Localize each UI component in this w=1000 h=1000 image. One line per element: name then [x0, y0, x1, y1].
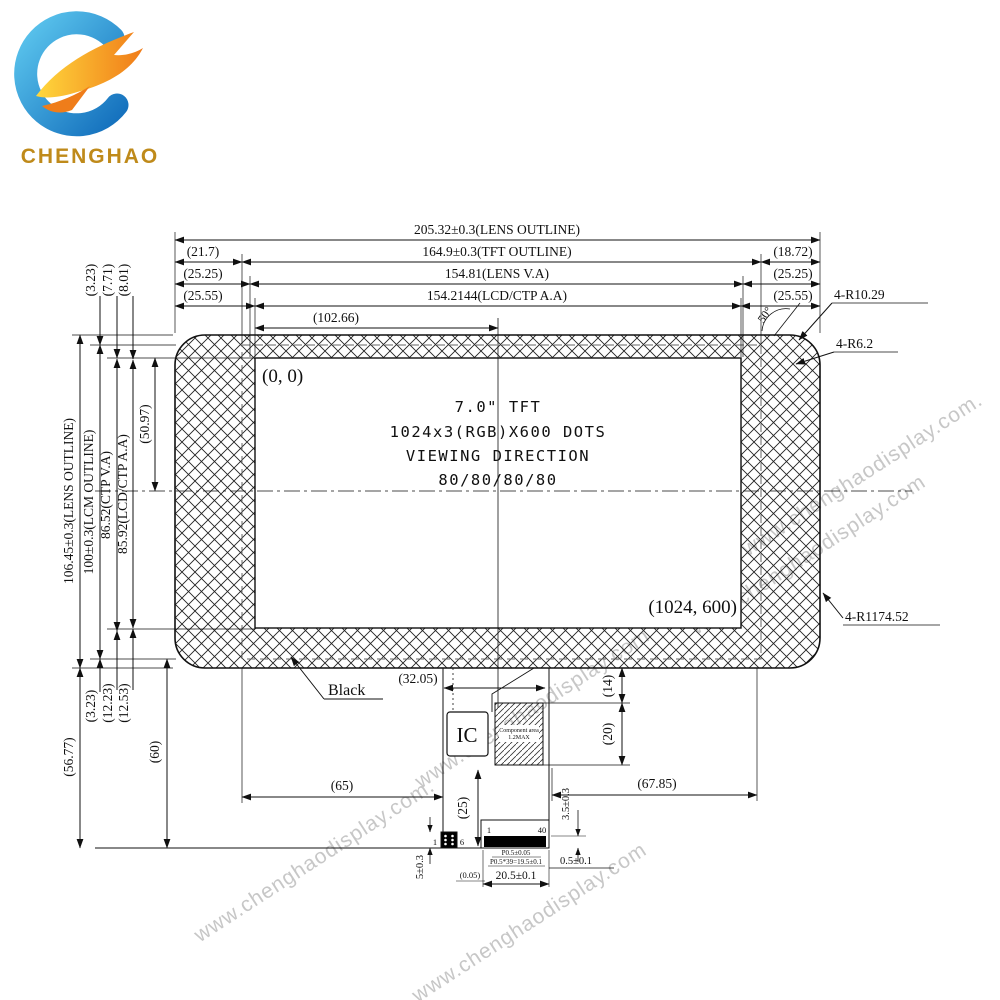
dim-fpc-length: (25)	[455, 797, 470, 820]
dim-aa-width: 154.2144(LCD/CTP A.A)	[427, 288, 567, 303]
black-print-label: Black	[328, 682, 365, 699]
dim-fpc-drop-lens: (56.77)	[61, 737, 76, 776]
panel-size-text: 7.0" TFT	[455, 398, 542, 416]
dim-fpc-drop-lcm: (60)	[147, 741, 162, 764]
dim-pitch-total: P0.5*39=19.5±0.1	[490, 858, 542, 866]
dim-lcm-outline-height: 100±0.3(LCM OUTLINE)	[81, 430, 96, 575]
viewing-angles-text: 80/80/80/80	[438, 471, 557, 489]
panel-resolution-text: 1024x3(RGB)X600 DOTS	[390, 423, 607, 441]
dim-lens-va-left-margin: (25.25)	[183, 266, 222, 281]
dim-bottom-gap-aa: (12.53)	[116, 683, 131, 722]
technical-drawing-svg: www.chenghaodisplay.com. www.chenghaodis…	[0, 0, 1000, 1000]
dim-aa-left-margin: (25.55)	[183, 288, 222, 303]
ic-label: IC	[457, 723, 478, 747]
panel-body	[95, 318, 912, 708]
viewing-direction-text: VIEWING DIRECTION	[406, 447, 590, 465]
dim-ctp-va-height: 86.52(CTP V.A)	[98, 451, 113, 539]
dim-aa-right-margin: (25.55)	[773, 288, 812, 303]
dim-stiffener-height: 5±0.3	[415, 855, 426, 879]
dim-pin-pitch: P0.5±0.05	[502, 849, 531, 857]
dim-ic-offset: (32.05)	[398, 671, 437, 686]
dim-bottom-gap-ctp: (12.23)	[100, 683, 115, 722]
dim-pin-margin: 0.5±0.1	[560, 856, 592, 867]
logo-company-name: CHENGHAO	[21, 145, 160, 168]
dim-top-gap-lcm: (3.23)	[83, 264, 98, 297]
dim-tft-outline-width: 164.9±0.3(TFT OUTLINE)	[422, 244, 571, 259]
small-connector	[441, 832, 457, 848]
dim-half-aa-width: (102.66)	[313, 310, 359, 325]
dim-lens-va-width: 154.81(LENS V.A)	[445, 266, 549, 281]
dim-gap-small: (0.05)	[460, 870, 481, 880]
dim-half-aa-height: (50.97)	[137, 404, 152, 443]
component-area-label-1: Component area	[499, 728, 539, 734]
small-connector-pin6-label: 6	[460, 837, 464, 847]
dim-aa-height: 85.92(LCD/CTP A.A)	[115, 434, 130, 554]
dim-tft-left-margin: (21.7)	[187, 244, 220, 259]
origin-coordinate: (0, 0)	[262, 366, 303, 387]
drawing-page: www.chenghaodisplay.com. www.chenghaodis…	[0, 0, 1000, 1000]
dim-top-gap-ctp: (7.71)	[100, 264, 115, 297]
component-area-label-2: 1.2MAX	[508, 735, 530, 741]
dim-lens-outline-width: 205.32±0.3(LENS OUTLINE)	[414, 222, 580, 237]
dim-component-height: (20)	[600, 723, 615, 746]
main-connector-pin40-label: 40	[538, 825, 547, 835]
dim-bottom-gap-lcm: (3.23)	[83, 690, 98, 723]
dim-corner-radius-1: 4-R10.29	[834, 287, 885, 302]
dim-connector-width: 20.5±0.1	[496, 870, 537, 882]
dim-component-gap: (14)	[600, 675, 615, 698]
small-connector-pin1-label: 1	[433, 837, 437, 847]
main-connector-pin1-label: 1	[487, 825, 491, 835]
dim-lens-va-right-margin: (25.25)	[773, 266, 812, 281]
dim-corner-radius-2: 4-R6.2	[836, 336, 873, 351]
dim-tft-right-margin: (18.72)	[773, 244, 812, 259]
dim-connector-thickness: 3.5±0.3	[561, 788, 572, 820]
main-connector-pins	[484, 836, 546, 847]
dim-top-gap-aa: (8.01)	[116, 264, 131, 297]
dim-lens-outline-height: 106.45±0.3(LENS OUTLINE)	[61, 418, 76, 584]
dim-fpc-right: (67.85)	[637, 776, 676, 791]
dim-edge-radius: 4-R1174.52	[845, 609, 909, 624]
corner-coordinate: (1024, 600)	[648, 597, 737, 618]
dim-fpc-left: (65)	[331, 778, 354, 793]
